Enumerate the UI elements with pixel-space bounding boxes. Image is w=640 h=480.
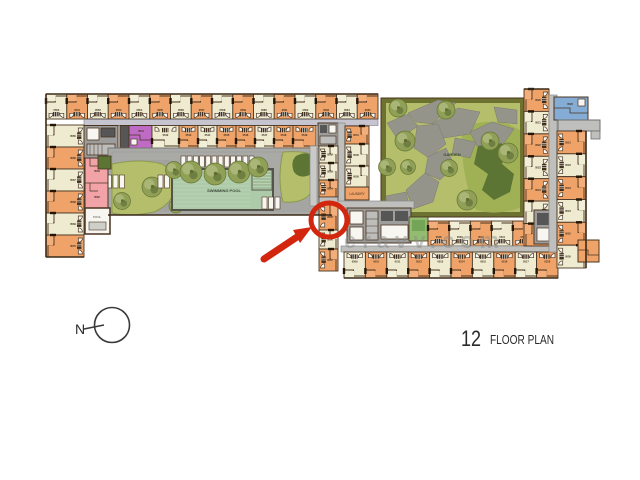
svg-text:0521: 0521 <box>535 121 541 125</box>
svg-text:0559: 0559 <box>240 108 246 112</box>
svg-text:0557: 0557 <box>199 108 205 112</box>
svg-text:0562: 0562 <box>94 195 100 199</box>
svg-text:0570: 0570 <box>70 244 76 248</box>
svg-text:0552: 0552 <box>95 108 101 112</box>
svg-text:0551: 0551 <box>74 108 80 112</box>
svg-text:0525: 0525 <box>565 232 571 236</box>
svg-text:N: N <box>75 321 85 337</box>
svg-text:0562: 0562 <box>303 108 309 112</box>
svg-text:0530: 0530 <box>353 153 359 157</box>
svg-text:0546: 0546 <box>243 133 249 137</box>
svg-text:12: 12 <box>461 326 481 351</box>
svg-text:0567: 0567 <box>70 178 76 182</box>
svg-text:0566: 0566 <box>70 156 76 160</box>
svg-text:SWIMMING POOL: SWIMMING POOL <box>207 188 241 193</box>
svg-text:0520: 0520 <box>535 98 541 102</box>
svg-text:0515: 0515 <box>480 259 486 263</box>
svg-text:0521: 0521 <box>565 140 571 144</box>
svg-text:0544: 0544 <box>205 133 211 137</box>
svg-text:0504: 0504 <box>327 187 333 191</box>
svg-text:0564: 0564 <box>344 108 350 112</box>
svg-text:0553: 0553 <box>116 108 122 112</box>
svg-text:0523: 0523 <box>535 166 541 170</box>
svg-text:0543: 0543 <box>186 133 192 137</box>
svg-text:0526: 0526 <box>565 255 571 259</box>
svg-text:0524: 0524 <box>565 209 571 213</box>
svg-text:0556: 0556 <box>178 108 184 112</box>
svg-text:0548: 0548 <box>281 133 287 137</box>
svg-text:0509: 0509 <box>352 259 358 263</box>
svg-text:0563: 0563 <box>323 108 329 112</box>
svg-text:0511: 0511 <box>395 259 401 263</box>
svg-text:0502: 0502 <box>327 153 333 157</box>
svg-text:0561: 0561 <box>282 108 288 112</box>
svg-text:0503: 0503 <box>327 170 333 174</box>
svg-text:0522: 0522 <box>565 163 571 167</box>
svg-text:0565: 0565 <box>70 134 76 138</box>
svg-text:FLOOR PLAN: FLOOR PLAN <box>490 332 554 347</box>
svg-text:0555: 0555 <box>157 108 163 112</box>
svg-text:0510: 0510 <box>373 259 379 263</box>
svg-text:0529: 0529 <box>353 175 359 179</box>
svg-text:0558: 0558 <box>220 108 226 112</box>
svg-text:0565: 0565 <box>365 108 371 112</box>
svg-text:0507: 0507 <box>327 258 333 262</box>
svg-text:0569: 0569 <box>70 222 76 226</box>
svg-text:0523: 0523 <box>565 186 571 190</box>
svg-text:GARDEN: GARDEN <box>443 152 460 157</box>
svg-text:0563: 0563 <box>94 169 100 173</box>
svg-text:0549: 0549 <box>302 133 308 137</box>
svg-text:0516: 0516 <box>502 259 508 263</box>
svg-text:0568: 0568 <box>70 200 76 204</box>
svg-text:POOL: POOL <box>93 215 102 219</box>
svg-text:0531: 0531 <box>353 133 359 137</box>
svg-text:0513: 0513 <box>437 259 443 263</box>
svg-text:eravv.com: eravv.com <box>344 228 505 253</box>
svg-text:0550: 0550 <box>54 108 60 112</box>
svg-text:0524: 0524 <box>535 188 541 192</box>
svg-text:0547: 0547 <box>262 133 268 137</box>
svg-text:0545: 0545 <box>224 133 230 137</box>
svg-text:0542: 0542 <box>163 133 169 137</box>
svg-text:0518: 0518 <box>544 259 550 263</box>
svg-text:LAUNDRY: LAUNDRY <box>349 192 365 196</box>
svg-text:0560: 0560 <box>261 108 267 112</box>
svg-text:0554: 0554 <box>137 108 143 112</box>
svg-text:0522: 0522 <box>535 143 541 147</box>
svg-text:0517: 0517 <box>523 259 529 263</box>
svg-text:0512: 0512 <box>416 259 422 263</box>
svg-text:0514: 0514 <box>459 259 465 263</box>
svg-text:0526: 0526 <box>567 102 573 106</box>
svg-text:0541: 0541 <box>138 129 144 133</box>
